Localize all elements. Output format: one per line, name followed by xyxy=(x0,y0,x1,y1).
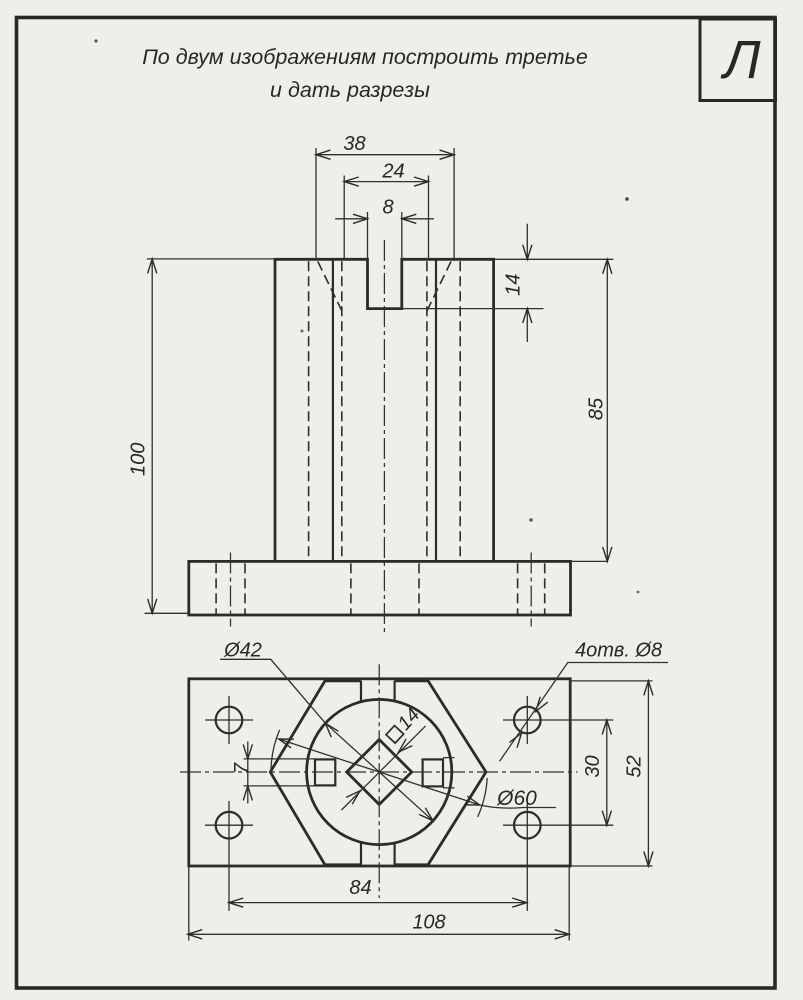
svg-text:108: 108 xyxy=(412,912,445,934)
svg-text:30: 30 xyxy=(582,755,604,777)
svg-text:Ø60: Ø60 xyxy=(496,787,537,810)
svg-text:Л: Л xyxy=(720,30,761,90)
svg-text:8: 8 xyxy=(382,197,393,219)
svg-text:52: 52 xyxy=(624,755,646,777)
svg-text:7: 7 xyxy=(231,762,253,774)
svg-text:24: 24 xyxy=(381,161,404,183)
svg-text:100: 100 xyxy=(128,443,150,476)
svg-text:85: 85 xyxy=(586,397,608,420)
svg-text:Ø42: Ø42 xyxy=(223,640,262,662)
svg-text:38: 38 xyxy=(343,133,365,155)
svg-text:4отв. Ø8: 4отв. Ø8 xyxy=(575,640,662,662)
svg-text:14: 14 xyxy=(503,274,525,296)
svg-text:По двум изображениям построить: По двум изображениям построить третье xyxy=(142,45,588,69)
svg-text:и дать разрезы: и дать разрезы xyxy=(270,78,430,102)
svg-text:84: 84 xyxy=(349,877,371,899)
